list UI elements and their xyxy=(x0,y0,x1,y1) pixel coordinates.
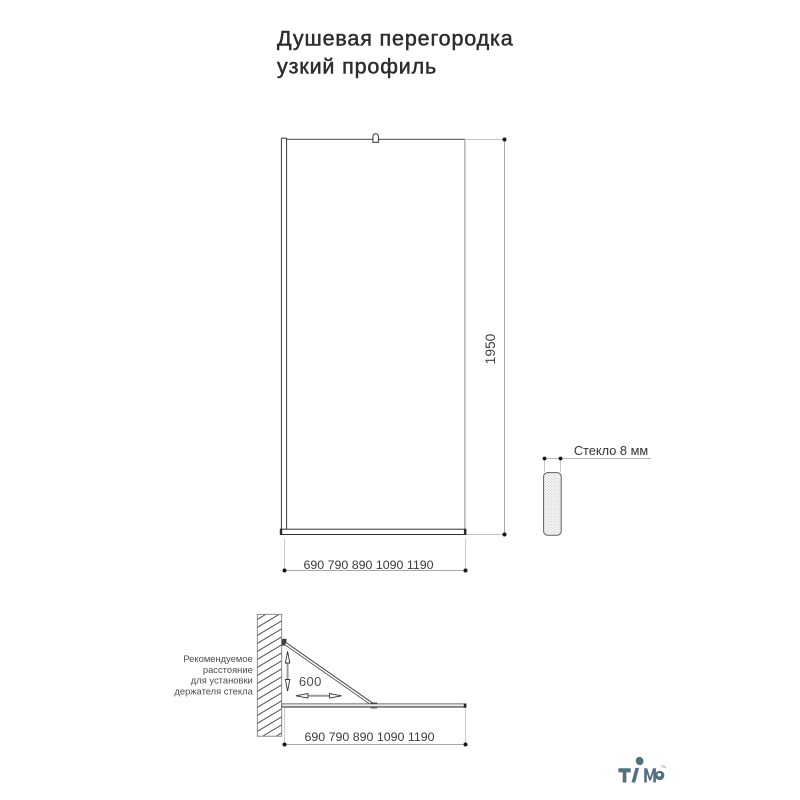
svg-text:Стекло 8 мм: Стекло 8 мм xyxy=(574,443,648,458)
svg-text:Душевая перегородка: Душевая перегородка xyxy=(277,26,514,50)
svg-text:держателя стекла: держателя стекла xyxy=(174,685,253,696)
svg-text:690 790 890 1090 1190: 690 790 890 1090 1190 xyxy=(305,730,435,744)
svg-text:1950: 1950 xyxy=(483,333,498,364)
svg-text:узкий профиль: узкий профиль xyxy=(277,55,437,79)
svg-text:для установки: для установки xyxy=(191,675,253,686)
svg-text:TM: TM xyxy=(661,765,666,769)
svg-text:690 790 890 1090 1190: 690 790 890 1090 1190 xyxy=(304,558,434,572)
svg-text:Рекомендуемое: Рекомендуемое xyxy=(183,653,252,664)
svg-text:600: 600 xyxy=(299,674,322,689)
svg-text:расстояние: расстояние xyxy=(203,664,253,675)
